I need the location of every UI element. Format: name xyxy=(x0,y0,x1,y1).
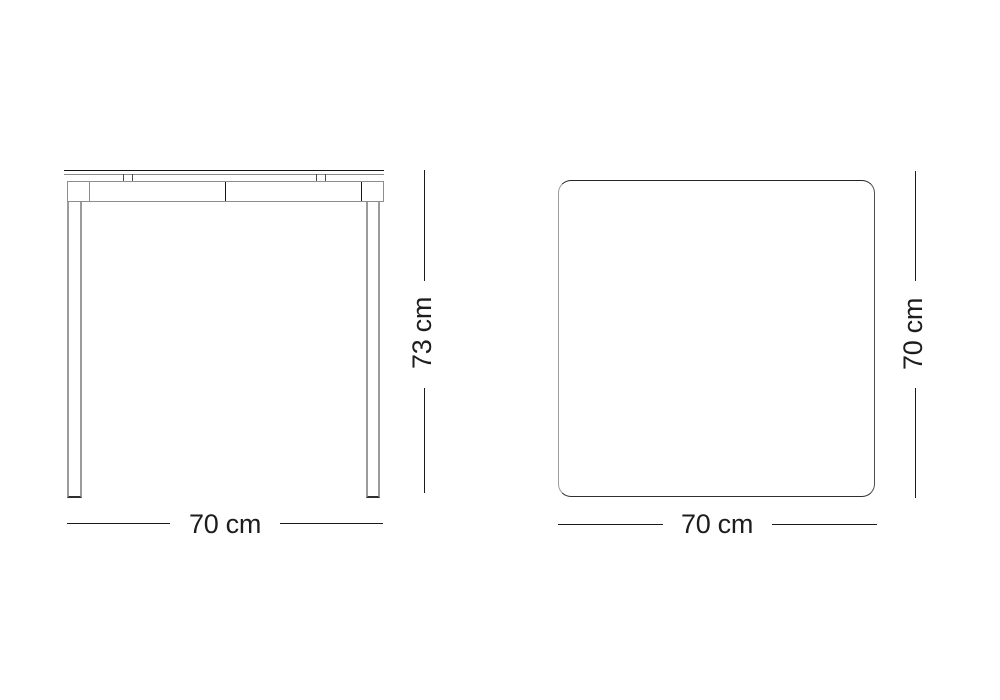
table-leg-left xyxy=(67,202,82,499)
plan-width-dimension-line-left xyxy=(558,524,663,525)
width-dimension-line-right xyxy=(280,523,383,524)
apron-divider-right xyxy=(361,182,362,201)
plan-depth-dimension-line-top xyxy=(915,171,916,281)
table-leg-right xyxy=(366,202,381,499)
apron-divider-left xyxy=(89,182,90,201)
tabletop-plan-outline xyxy=(558,180,875,497)
plan-width-label: 70 cm xyxy=(657,509,777,539)
front-width-label: 70 cm xyxy=(165,509,285,539)
front-height-label: 73 cm xyxy=(407,273,437,393)
width-dimension-line-left xyxy=(67,523,170,524)
height-dimension-line-top xyxy=(424,170,425,281)
plan-depth-label: 70 cm xyxy=(898,274,928,394)
height-dimension-line-bottom xyxy=(424,388,425,493)
plan-width-dimension-line-right xyxy=(772,524,877,525)
dimension-diagram: 70 cm 73 cm 70 cm 70 cm xyxy=(0,0,1000,700)
plan-depth-dimension-line-bottom xyxy=(915,388,916,498)
tabletop-front xyxy=(64,170,384,175)
apron-divider-middle xyxy=(225,182,226,201)
table-apron xyxy=(67,181,384,202)
